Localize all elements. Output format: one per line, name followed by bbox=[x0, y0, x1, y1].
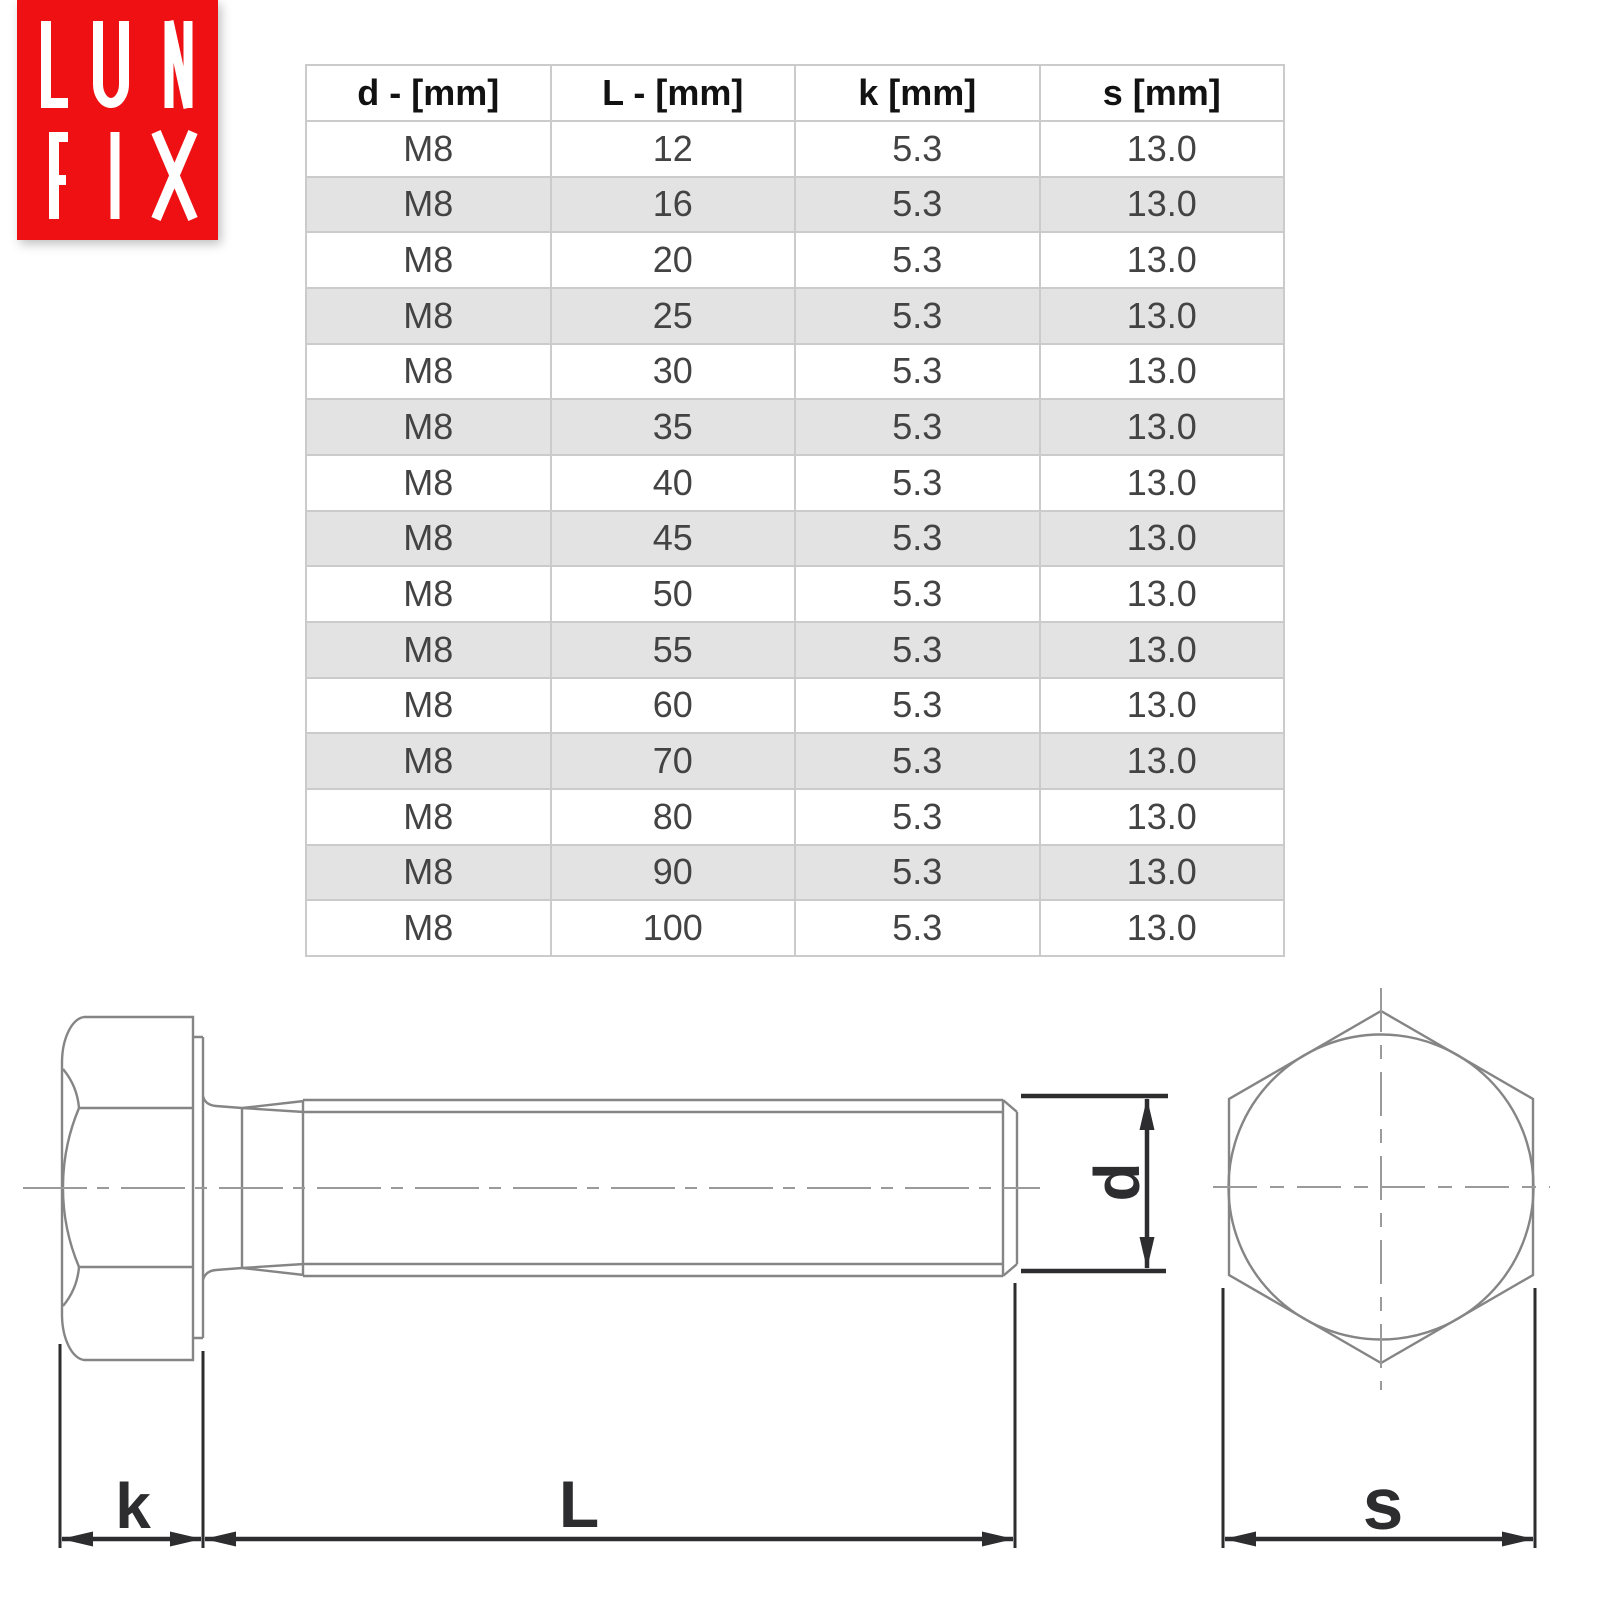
svg-text:L: L bbox=[559, 1467, 599, 1541]
svg-text:k: k bbox=[115, 1470, 151, 1542]
svg-text:d: d bbox=[1081, 1162, 1153, 1201]
svg-text:s: s bbox=[1363, 1464, 1404, 1545]
